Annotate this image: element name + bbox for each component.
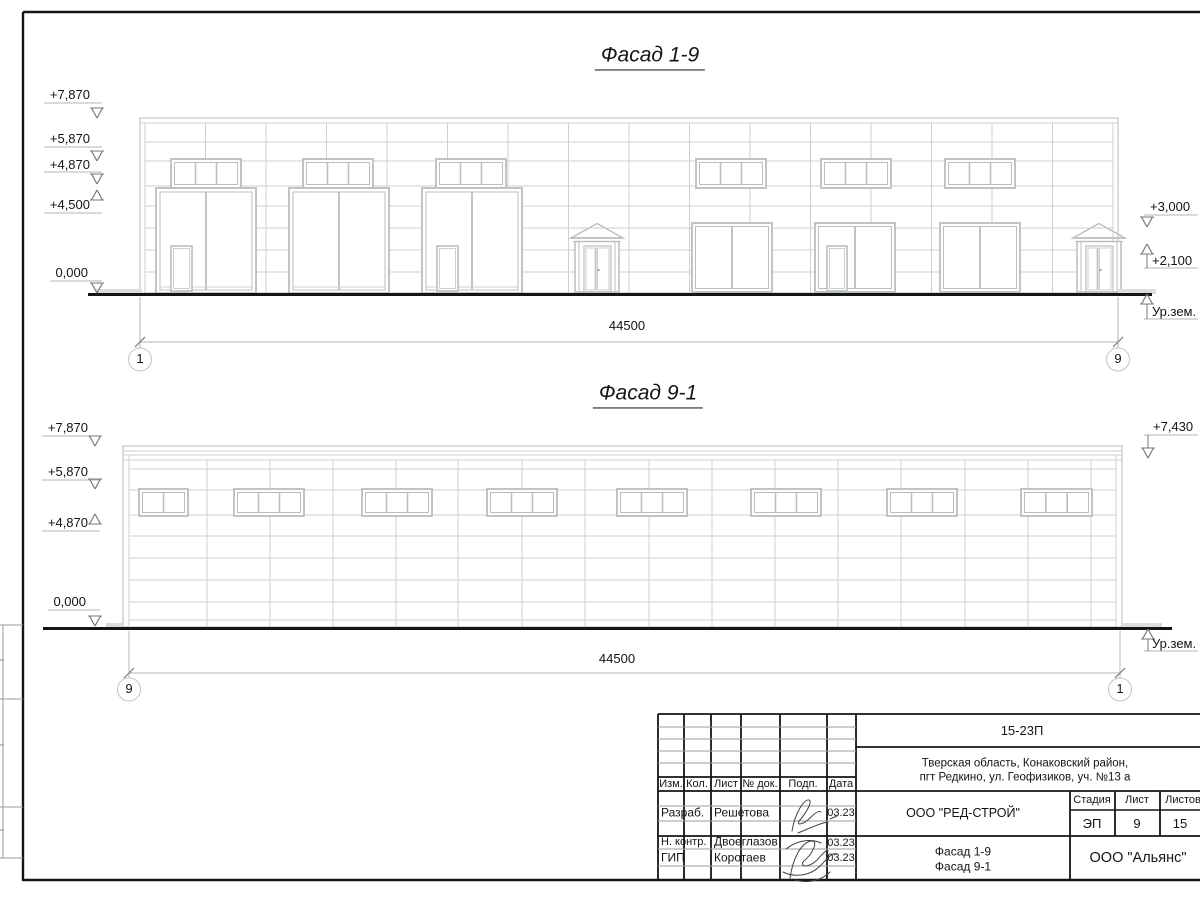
project-address-line2: пгт Редкино, ул. Геофизиков, уч. №13 а <box>920 772 1131 785</box>
row-role-razrab: Разраб. <box>661 806 704 819</box>
elevation-label-f2-7430: +7,430 <box>1153 420 1193 434</box>
stage-header: Стадия <box>1073 794 1111 806</box>
row-date-gip: 03.23 <box>827 852 855 864</box>
col-header-list: Лист <box>714 778 738 790</box>
contractor-company: ООО "Альянс" <box>1090 851 1187 867</box>
sheet-number: 9 <box>1133 817 1140 831</box>
elevation-label-f1-0000: 0,000 <box>55 266 88 280</box>
elevation-label-f1-4870: +4,870 <box>50 158 90 172</box>
elevation-label-f2-0000: 0,000 <box>53 595 86 609</box>
row-date-razrab: 03.23 <box>827 807 855 819</box>
doc-name-line1: Фасад 1-9 <box>935 845 991 858</box>
row-role-nkontr: Н. контр. <box>661 836 706 848</box>
ground-level-label-f2: Ур.зем. <box>1152 637 1196 651</box>
col-header-izm: Изм. <box>659 778 683 790</box>
facade-9-1-title: Фасад 9-1 <box>593 381 703 408</box>
sheets-header: Листов <box>1165 794 1200 806</box>
dimension-text-f1: 44500 <box>609 319 645 333</box>
row-date-nkontr: 03.23 <box>827 837 855 849</box>
row-name-nkontr: Двоеглазов <box>714 835 778 848</box>
axis-bubble-f2-left: 9 <box>125 682 132 696</box>
row-role-gip: ГИП <box>661 851 685 864</box>
project-address-line1: Тверская область, Конаковский район, <box>922 758 1128 771</box>
row-name-gip: Коротаев <box>714 851 766 864</box>
dimension-text-f2: 44500 <box>599 652 635 666</box>
sheets-total: 15 <box>1173 817 1187 831</box>
doc-name-line2: Фасад 9-1 <box>935 860 991 873</box>
elevation-label-f2-4870: +4,870 <box>48 516 88 530</box>
col-header-kol: Кол. <box>686 778 708 790</box>
sheet-header: Лист <box>1125 794 1149 806</box>
design-company: ООО "РЕД-СТРОЙ" <box>906 807 1020 821</box>
elevation-label-f1-3000: +3,000 <box>1150 200 1190 214</box>
axis-bubble-f2-right: 1 <box>1116 682 1123 696</box>
elevation-label-f2-5870: +5,870 <box>48 465 88 479</box>
facade-1-9-title: Фасад 1-9 <box>595 43 705 70</box>
col-header-data: Дата <box>829 778 853 790</box>
axis-bubble-f1-left: 1 <box>136 352 143 366</box>
project-code: 15-23П <box>1001 724 1044 738</box>
elevation-label-f2-7870: +7,870 <box>48 421 88 435</box>
ground-level-label-f1: Ур.зем. <box>1152 305 1196 319</box>
elevation-label-f1-2100: +2,100 <box>1152 254 1192 268</box>
elevation-label-f1-5870: +5,870 <box>50 132 90 146</box>
drawing-sheet: Фасад 1-9 +7,870 +5,870 +4,870 +4,500 0,… <box>0 0 1200 900</box>
col-header-podp: Подп. <box>788 778 817 790</box>
col-header-doc: № док. <box>742 778 777 790</box>
stage-value: ЭП <box>1083 817 1102 831</box>
axis-bubble-f1-right: 9 <box>1114 352 1121 366</box>
row-name-razrab: Решетова <box>714 806 769 819</box>
elevation-label-f1-4500: +4,500 <box>50 198 90 212</box>
elevation-label-f1-7870: +7,870 <box>50 88 90 102</box>
